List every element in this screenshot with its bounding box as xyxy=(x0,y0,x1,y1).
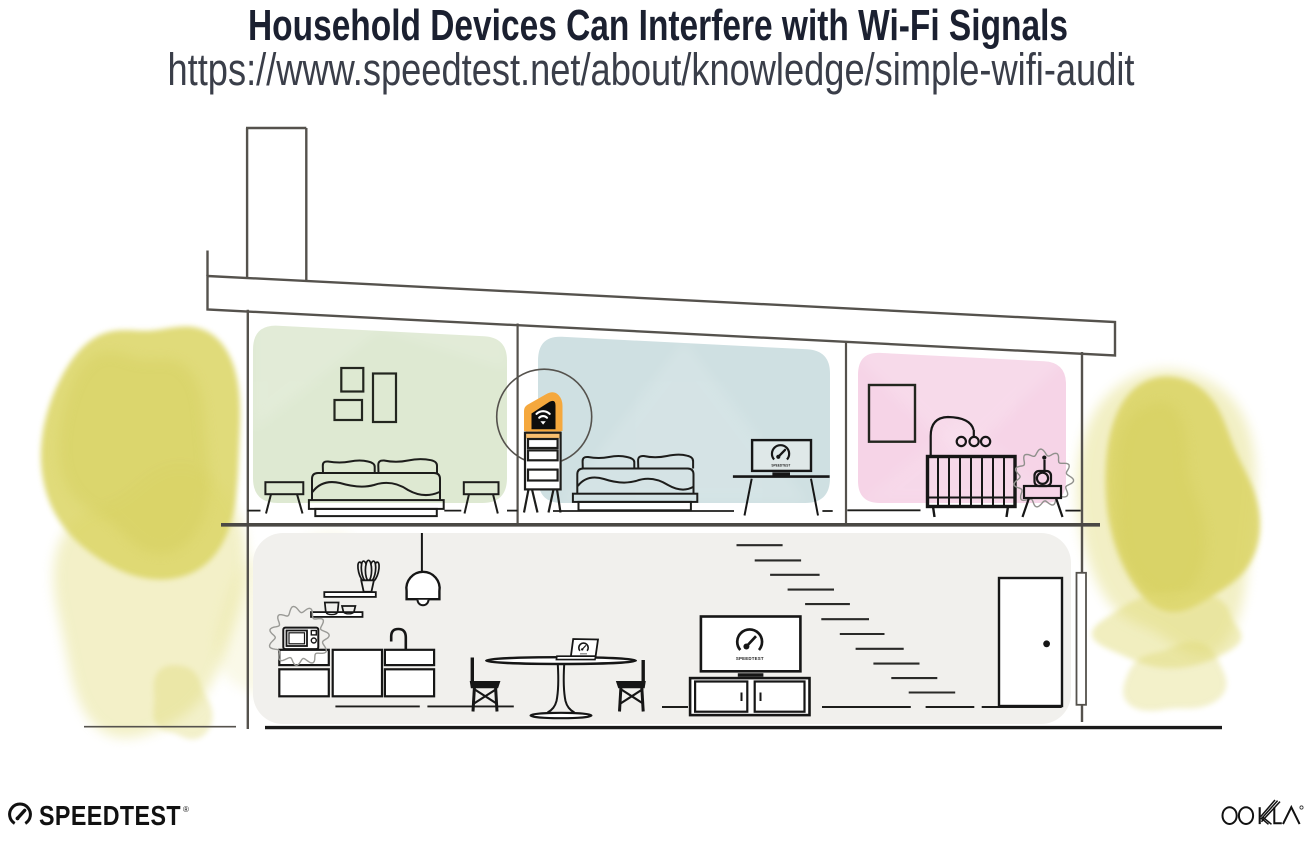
svg-text:Household Devices Can Interfer: Household Devices Can Interfere with Wi-… xyxy=(248,1,1068,50)
svg-text:®: ® xyxy=(183,805,189,814)
svg-text:SPEEDTEST: SPEEDTEST xyxy=(39,800,181,831)
svg-text:https://www.speedtest.net/abou: https://www.speedtest.net/about/knowledg… xyxy=(168,44,1135,95)
svg-text:SPEEDTEST: SPEEDTEST xyxy=(771,463,790,467)
svg-text:SPEEDTEST: SPEEDTEST xyxy=(736,656,764,661)
